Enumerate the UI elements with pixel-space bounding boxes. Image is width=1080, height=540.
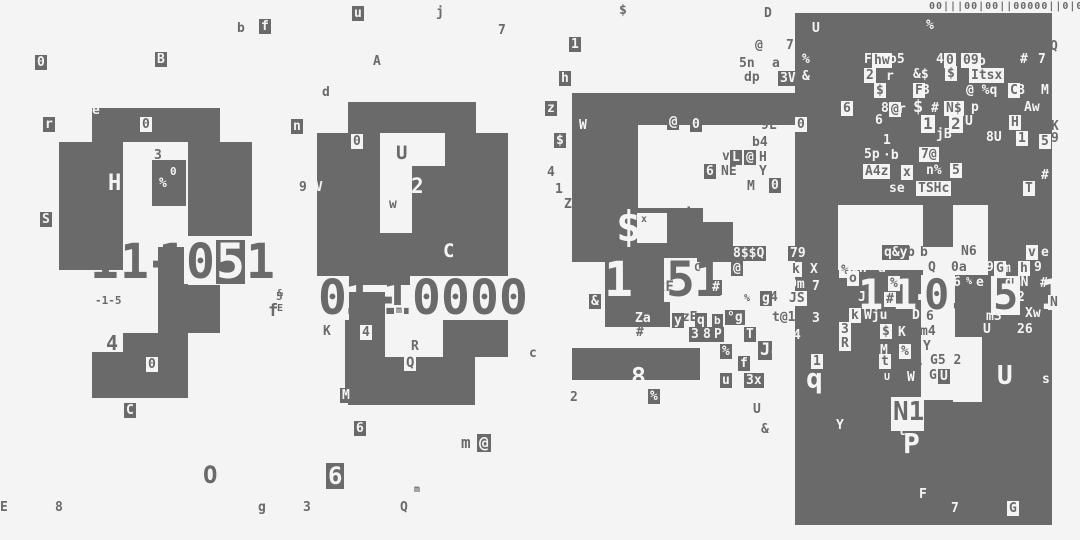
glyph-cell: 5 [1039, 134, 1051, 149]
glyph-cell: N1 [893, 399, 924, 425]
glyph-cell: 0 [35, 55, 47, 70]
glyph-cell: 3 [812, 312, 820, 325]
glyph-cell: G [929, 369, 937, 382]
glyph-cell: & [802, 70, 810, 83]
glyph-cell: % [899, 344, 911, 359]
glyph-cell: m4 [920, 325, 936, 338]
glyph-cell: o5 [889, 53, 905, 66]
glyph-cell: L [730, 150, 742, 165]
glyph-cell: r [898, 103, 906, 116]
cluster2-number-glyph: 1 [344, 276, 373, 320]
glyph-cell: m [461, 435, 471, 451]
glyph-cell: Y [759, 165, 767, 178]
glyph-cell: °g [725, 310, 745, 325]
glyph-cell: M [340, 388, 352, 403]
glyph-cell: m [414, 485, 420, 495]
glyph-cell: 26 [1017, 323, 1033, 336]
glyph-cell: C [124, 403, 136, 418]
glyph-cell: D [764, 7, 772, 20]
glyph-cell: dp [744, 71, 760, 84]
glyph-cell: 0a [951, 261, 967, 274]
glyph-cell: b [907, 246, 915, 259]
glyph-cell: 9 [299, 181, 307, 194]
glyph-cell: P [903, 430, 920, 458]
glyph-cell: E [0, 501, 8, 514]
glyph-cell: % [648, 389, 660, 404]
glyph-cell: D [912, 309, 920, 322]
blob-rect [188, 142, 252, 236]
glyph-cell: Xw [1025, 307, 1041, 320]
glyph-cell: B [1017, 84, 1025, 97]
glyph-cell: 4 [770, 291, 778, 304]
glyph-cell: H [759, 151, 767, 164]
glyph-cell: Wju [864, 309, 887, 322]
glyph-cell: 9 [1051, 132, 1059, 145]
glyph-cell: b4 [752, 136, 768, 149]
glyph-cell: F [919, 488, 927, 501]
glyph-cell: h [559, 71, 571, 86]
glyph-cell: 1 [569, 37, 581, 52]
glyph-cell: o [847, 271, 859, 286]
glyph-cell: i [683, 207, 694, 225]
glyph-cell: ° [656, 216, 664, 229]
glyph-cell: 4 [793, 329, 801, 342]
glyph-cell: U [965, 115, 973, 128]
glyph-cell: e [1041, 246, 1049, 259]
glyph-cell: G [1007, 501, 1019, 516]
glyph-cell: 8 [631, 364, 646, 389]
glyph-cell: N6 [961, 245, 977, 258]
glyph-cell: 4 [106, 333, 118, 353]
glyph-cell: 5 [950, 163, 962, 178]
glyph-cell: 6 [354, 421, 366, 436]
glyph-cell: $ [619, 4, 627, 17]
glyph-cell: k [790, 262, 802, 277]
glyph-cell: 0Z [761, 102, 777, 115]
glyph-cell: $ [554, 133, 566, 148]
glyph-cell: f [640, 276, 647, 288]
top-binary-strip: 00|||00|00||00000||0|0|00||000| [929, 1, 1080, 12]
glyph-cell: s [1042, 373, 1050, 386]
hole-rect [925, 389, 973, 397]
glyph-cell: A4z [863, 164, 890, 179]
glyph-cell: u [720, 373, 732, 388]
glyph-cell: 3 [839, 322, 851, 337]
glyph-cell: Q [404, 355, 416, 371]
glyph-cell: # [636, 326, 644, 339]
glyph-cell: b [920, 246, 928, 259]
glyph-cell: % [802, 53, 810, 66]
glyph-cell: O [203, 463, 217, 487]
glyph-cell: 6 [875, 114, 883, 127]
glyph-cell: n% [926, 164, 942, 177]
glyph-cell: Q [928, 261, 936, 274]
glyph-cell: dmN [1005, 276, 1028, 289]
glyph-cell: Vl [634, 260, 647, 271]
glyph-cell: $ [945, 66, 957, 81]
glyph-cell: b [712, 314, 723, 327]
glyph-cell: win [722, 136, 745, 149]
glyph-cell: n [291, 119, 303, 134]
glyph-cell: k [849, 308, 861, 323]
glyph-cell: 7 [498, 24, 506, 37]
glyph-cell: # [884, 292, 896, 307]
glyph-cell: ·b [883, 149, 899, 162]
blob-rect [152, 160, 186, 206]
glyph-cell: & [761, 423, 769, 436]
glyph-cell: W [731, 292, 739, 305]
glyph-cell: % [720, 344, 732, 359]
glyph-cell: h [1018, 261, 1030, 276]
glyph-cell: x [642, 228, 648, 238]
glyph-cell: @ %q [966, 84, 997, 97]
glyph-cell: S [40, 212, 52, 227]
glyph-cell: JS [787, 291, 807, 306]
glyph-cell: 0 [690, 117, 702, 132]
glyph-cell: 3 [303, 501, 311, 514]
glyph-cell: 1 [555, 183, 563, 196]
glyph-cell: g [258, 501, 266, 514]
glyph-cell: 3x [744, 373, 764, 388]
glyph-cell: $ [616, 206, 641, 248]
glyph-cell: 7 [951, 502, 959, 515]
glyph-cell: - [899, 277, 907, 290]
glyph-cell: w [387, 197, 399, 212]
glyph-cell: 6 [926, 310, 934, 323]
blob-rect [317, 133, 380, 285]
glyph-cell: $ [874, 83, 886, 98]
glyph-cell: M [747, 180, 755, 193]
glyph-cell: i [786, 356, 794, 369]
glyph-cell: 9 [1034, 261, 1042, 274]
glyph-cell: H [1009, 115, 1021, 130]
glyph-cell: T [744, 327, 756, 342]
glyph-cell: 7@ [919, 147, 939, 162]
glyph-cell: f [259, 19, 271, 34]
glyph-cell: 0 [140, 117, 152, 132]
glyph-cell: # [710, 280, 722, 295]
glyph-cell: 7 [1038, 53, 1046, 66]
cluster1-number-glyph: 0 [184, 240, 217, 284]
glyph-cell: @ [731, 261, 743, 276]
glyph-cell: Aw [1024, 101, 1040, 114]
glyph-cell: 2 [570, 391, 578, 404]
glyph-cell: t@1 [772, 311, 795, 324]
glyph-cell: q [695, 313, 707, 328]
glyph-cell: 2 [1017, 291, 1025, 304]
glyph-cell: 6 [326, 463, 344, 489]
glyph-cell: 7 [738, 91, 752, 115]
glyph-cell: 3 [154, 149, 162, 162]
glyph-cell: 8$$Q [731, 246, 766, 261]
glyph-cell: 4 [547, 166, 555, 179]
glyph-cell: K [321, 324, 333, 339]
glyph-cell: v [1026, 245, 1038, 260]
glyph-cell: r [43, 117, 55, 132]
glyph-cell: A [373, 55, 381, 68]
glyph-cell: t [879, 354, 891, 369]
glyph-cell: 0 [795, 117, 807, 132]
glyph-cell: Itsx [969, 68, 1004, 83]
glyph-cell: Z [564, 198, 572, 211]
glyph-cell: M [1041, 84, 1049, 97]
glyph-cell: X [588, 80, 598, 97]
blob-rect [572, 125, 638, 208]
glitch-art-canvas: 00|||00|00||00000||0|0|00||000|11-105101… [0, 0, 1080, 540]
glyph-cell: 1 [883, 134, 891, 147]
glyph-cell: F [864, 53, 872, 66]
glyph-cell: 3 [402, 247, 410, 260]
glyph-cell: 7 [786, 39, 794, 52]
glyph-cell: 8U [986, 131, 1002, 144]
glyph-cell: U [983, 323, 991, 336]
glyph-cell: 2 [864, 68, 876, 83]
glyph-cell: 6 [841, 101, 853, 116]
glyph-cell: 8 [55, 501, 63, 514]
glyph-cell: TSHc [916, 181, 951, 196]
glyph-cell: 0 [769, 178, 781, 193]
glyph-cell: 3 [922, 84, 930, 97]
blob-rect [188, 285, 220, 333]
glyph-cell: u [352, 6, 364, 21]
glyph-cell: P [712, 327, 724, 342]
glyph-cell: m [1003, 262, 1011, 275]
glyph-cell: # [1040, 277, 1048, 290]
glyph-cell: @ [477, 434, 491, 452]
glyph-cell: 5p [864, 148, 880, 161]
glyph-cell: 0 [170, 166, 177, 177]
glyph-cell: 1 [1016, 131, 1028, 146]
glyph-cell: j [436, 6, 444, 19]
glyph-cell: x [901, 165, 913, 180]
glyph-cell: Q [1050, 40, 1058, 53]
glyph-cell: Q [400, 501, 408, 514]
glyph-cell: @ [755, 39, 763, 52]
glyph-cell: i [752, 262, 760, 276]
glyph-cell: H [108, 173, 121, 195]
cluster2-number-glyph: 0 [439, 276, 472, 320]
glyph-cell: 7 [812, 280, 820, 293]
glyph-cell: e [92, 104, 100, 117]
glyph-cell: Dm [789, 278, 805, 291]
cluster2-number-glyph: 0 [468, 276, 501, 320]
glyph-cell: U [396, 144, 407, 163]
glyph-cell: o [978, 55, 986, 68]
glyph-cell: jB [936, 128, 952, 141]
cluster1-number-glyph: 1 [120, 240, 149, 284]
glyph-cell: U [938, 369, 950, 384]
cluster2-number-glyph: 0 [497, 276, 530, 320]
glyph-cell: C [443, 242, 454, 261]
glyph-cell: Za [633, 311, 653, 326]
glyph-cell: J [725, 102, 733, 115]
glyph-cell: Y [923, 340, 931, 353]
glyph-cell: W [579, 119, 587, 132]
glyph-cell: q&y [882, 245, 909, 260]
glyph-cell: # [1020, 53, 1028, 66]
glyph-cell: v [722, 150, 730, 163]
glyph-cell: 2 [411, 176, 424, 197]
glyph-cell: % [744, 294, 750, 304]
glyph-cell: % [966, 277, 972, 287]
glyph-cell: 4 [360, 325, 372, 340]
glyph-cell: NE [721, 165, 737, 178]
glyph-cell: 0 [351, 134, 363, 149]
cluster1-number-glyph: 5 [216, 240, 245, 284]
glyph-cell: $ [913, 99, 923, 116]
glyph-cell: 6 [704, 164, 716, 179]
glyph-cell: U [884, 373, 890, 383]
glyph-cell: E [277, 304, 283, 314]
glyph-cell: 3V [778, 71, 798, 86]
glyph-cell: # [1041, 169, 1049, 182]
glyph-cell: c [529, 347, 537, 360]
glyph-cell: R [411, 340, 419, 353]
glyph-cell: m [394, 305, 404, 317]
cluster1-number-glyph: 1 [158, 240, 187, 284]
cluster1-number-glyph: 1 [90, 240, 119, 284]
glyph-cell: U [812, 22, 820, 35]
glyph-cell: @ [744, 150, 756, 165]
blob-rect [92, 352, 188, 398]
glyph-cell: U [997, 363, 1013, 389]
glyph-cell: 4 [936, 53, 944, 66]
glyph-cell: x [641, 215, 647, 225]
glyph-cell: &$ [913, 68, 929, 81]
glyph-cell: Y [836, 419, 844, 432]
cluster3-number-glyph: 1 [604, 258, 633, 302]
glyph-cell: 0 [146, 357, 158, 372]
glyph-cell: K [898, 326, 906, 339]
glyph-cell: 1 [921, 115, 935, 133]
glyph-cell: B [155, 52, 167, 67]
glyph-cell: N [1048, 295, 1060, 310]
glyph-cell: 9 [986, 261, 994, 274]
glyph-cell: & [589, 294, 601, 309]
glyph-cell: se [889, 182, 905, 195]
glyph-cell: T [1023, 181, 1035, 196]
glyph-cell: b [425, 363, 439, 386]
glyph-cell: G5 2 [930, 354, 961, 367]
cluster1-number-glyph: 1 [246, 240, 275, 284]
glyph-cell: X [808, 262, 820, 277]
glyph-cell: 5n [739, 57, 755, 70]
glyph-cell: W [907, 371, 915, 384]
glyph-cell: $ [880, 324, 892, 339]
blob-rect [348, 102, 476, 133]
glyph-cell: & [277, 289, 283, 299]
glyph-cell: -1-5 [95, 295, 122, 306]
blob-rect [92, 108, 220, 142]
glyph-cell: 9L [761, 119, 777, 132]
glyph-cell: % [159, 177, 167, 190]
glyph-cell: 6 [953, 276, 961, 289]
glyph-cell: % [914, 356, 922, 369]
glyph-cell: R [839, 336, 851, 351]
glyph-cell: 3 [689, 327, 701, 342]
glyph-cell: q [806, 365, 823, 393]
glyph-cell: r [886, 70, 894, 83]
glyph-cell: p [971, 101, 979, 114]
glyph-cell: % [926, 19, 934, 32]
glyph-cell: 2F [657, 280, 674, 294]
glyph-cell: d [322, 86, 330, 99]
glyph-cell: U [753, 403, 761, 416]
glyph-cell: z [545, 101, 557, 116]
glyph-cell: f [738, 356, 750, 371]
glyph-cell: a [878, 262, 886, 275]
glyph-cell: a [772, 57, 780, 70]
glyph-cell: y [672, 313, 684, 328]
glyph-cell: ° [698, 248, 703, 257]
cluster2-number-glyph: 0 [410, 276, 443, 320]
glyph-cell: @ [667, 114, 679, 130]
glyph-cell: b [237, 22, 245, 35]
glyph-cell: C [694, 262, 701, 273]
glyph-cell: V [315, 181, 323, 194]
glyph-cell: e [976, 276, 984, 289]
glyph-cell: 79 [788, 246, 808, 261]
glyph-cell: J [858, 291, 866, 304]
